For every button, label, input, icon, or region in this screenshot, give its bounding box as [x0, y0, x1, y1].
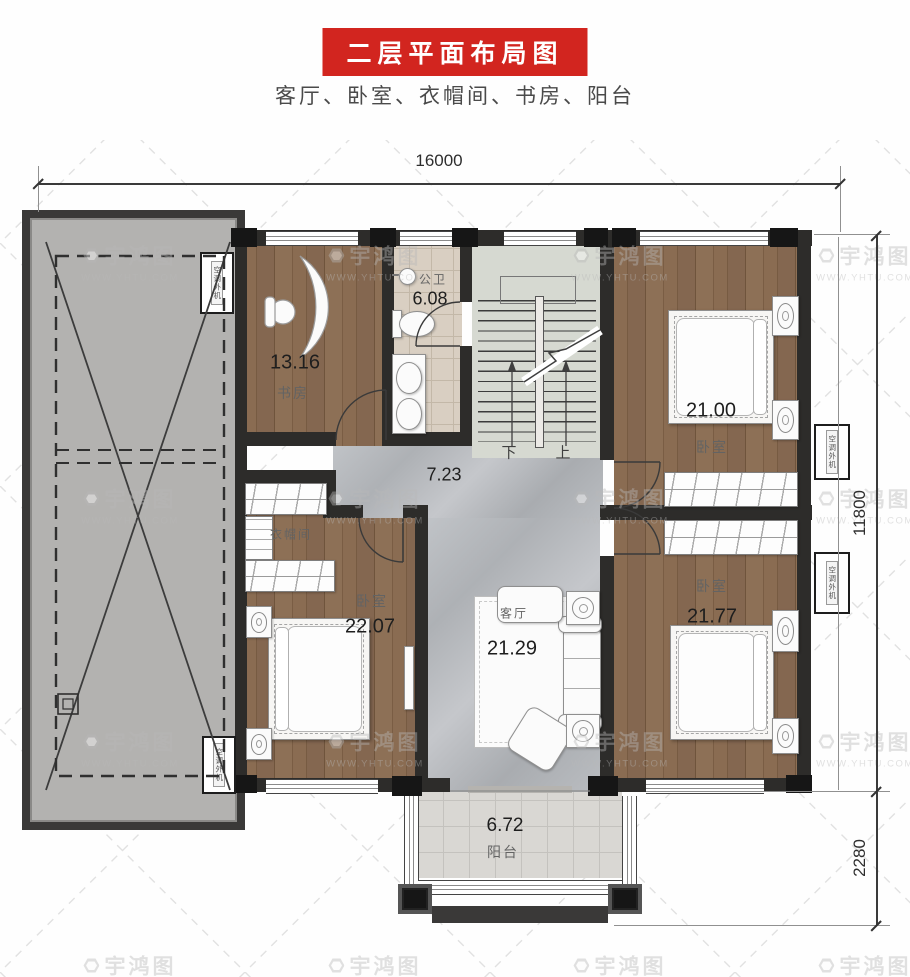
balcony-rail-left: [404, 796, 419, 888]
shower-head: [399, 268, 416, 285]
bedroom-bottom-right-area: 21.77: [687, 606, 737, 629]
eave-line-right: [838, 237, 839, 790]
cloakroom-label: 衣帽间: [270, 526, 312, 543]
window-bedroom-bottom-left: [266, 779, 378, 794]
balcony-base-band: [432, 906, 608, 923]
cloakroom-wardrobe-top: [245, 483, 327, 515]
wall-hall-bedroom-left: [336, 505, 363, 518]
study-label: 书房: [277, 383, 309, 403]
nightstand: [772, 296, 799, 336]
balcony-rail-bottom: [418, 880, 622, 895]
nightstand: [772, 610, 799, 652]
dimension-ext-right-3: [614, 925, 890, 926]
hallway-area: 7.23: [426, 465, 461, 486]
bathroom-label: 公卫: [419, 271, 447, 288]
living-room-area: 21.29: [487, 638, 537, 661]
wall-bedroom-living: [415, 505, 428, 780]
nightstand: [246, 728, 272, 760]
ac-outdoor-unit: 空调外机: [200, 252, 234, 314]
watermark: 宇鸿图WWW.YHTU.COM: [326, 951, 424, 977]
dimension-line-top: [38, 183, 840, 185]
watermark-logo-icon: [819, 249, 835, 263]
floor-plan-page: 二层平面布局图 客厅、卧室、衣帽间、书房、阳台 16000 11800 2280: [0, 0, 910, 977]
wall-bedrooms-divider: [600, 505, 812, 520]
dimension-ext-top-left: [38, 166, 39, 212]
column: [584, 228, 608, 247]
watermark-logo-icon: [574, 959, 590, 973]
watermark: 宇鸿图WWW.YHTU.COM: [571, 951, 669, 977]
bedroom-bottom-left-label: 卧室: [356, 591, 388, 611]
cloakroom-shelf: [245, 516, 273, 560]
watermark-logo-icon: [819, 735, 835, 749]
watermark-logo-icon: [84, 959, 100, 973]
column: [770, 228, 798, 247]
side-table: [566, 714, 600, 748]
toilet-bowl: [399, 311, 435, 337]
window-bathroom: [400, 231, 452, 246]
watermark: 宇鸿图WWW.YHTU.COM: [816, 727, 910, 770]
dimension-side-main: 11800: [850, 490, 870, 536]
column: [612, 228, 636, 247]
column: [452, 228, 478, 247]
bed-bottom-right: [670, 625, 774, 740]
watermark: 宇鸿图WWW.YHTU.COM: [81, 951, 179, 977]
watermark-logo-icon: [819, 492, 835, 506]
balcony-step: [468, 786, 572, 793]
stair-stringer: [535, 296, 544, 448]
living-room-label: 客厅: [500, 605, 528, 622]
wardrobe-bedroom-top-right: [664, 472, 798, 507]
wall-bath-stairs-lower: [460, 346, 472, 446]
watermark-logo-icon: [329, 959, 345, 973]
ac-outdoor-unit: 空调外机: [814, 552, 850, 614]
dimension-top-width: 16000: [415, 151, 462, 171]
balcony-corner-column-right: [608, 884, 642, 914]
dimension-ext-right-2: [646, 791, 890, 792]
bathroom-sink: [396, 362, 422, 394]
watermark: 宇鸿图WWW.YHTU.COM: [816, 951, 910, 977]
wall-hall-bedroom-right: [403, 505, 415, 518]
wall-stairs-right: [600, 240, 614, 460]
ac-outdoor-unit: 空调外机: [202, 736, 236, 794]
wall-living-bedroom-right: [600, 556, 614, 780]
study-area: 13.16: [270, 352, 320, 375]
window-bedroom-top-right: [640, 231, 768, 246]
bedroom-bottom-right-label: 卧室: [696, 576, 728, 596]
page-title: 二层平面布局图: [322, 28, 587, 76]
stair-up-label: 上: [555, 442, 570, 463]
window-study: [266, 231, 358, 246]
bedroom-top-right-area: 21.00: [686, 400, 736, 423]
balcony-area: 6.72: [487, 815, 524, 837]
cloakroom-wardrobe-bottom: [245, 560, 335, 592]
tv-console: [404, 646, 414, 710]
sofa: [563, 628, 601, 720]
page-subtitle: 客厅、卧室、衣帽间、书房、阳台: [0, 80, 910, 110]
column: [231, 228, 257, 247]
watermark: 宇鸿图WWW.YHTU.COM: [816, 241, 910, 284]
bathroom-area: 6.08: [412, 289, 447, 310]
window-stairs: [504, 231, 576, 246]
nightstand: [772, 400, 799, 440]
wall-bath-bottom: [382, 432, 472, 446]
column: [370, 228, 396, 247]
dimension-ext-top-right: [840, 166, 841, 232]
bedroom-top-right-label: 卧室: [696, 437, 728, 457]
balcony-label: 阳台: [487, 842, 519, 862]
dimension-line-right: [876, 235, 878, 926]
balcony-rail-right: [622, 796, 637, 888]
watermark-logo-icon: [819, 959, 835, 973]
bathroom-sink: [396, 398, 422, 430]
wall-bath-stairs-upper: [460, 240, 472, 302]
ac-outdoor-unit: 空调外机: [814, 424, 850, 480]
bedroom-bottom-left-area: 22.07: [345, 616, 395, 639]
balcony-corner-column-left: [398, 884, 432, 914]
study-floor: [243, 246, 388, 446]
wall-study-bottom: [243, 432, 336, 446]
nightstand: [246, 606, 272, 638]
column-balcony-left: [392, 776, 422, 796]
side-table: [566, 591, 600, 625]
column-balcony-right: [588, 776, 618, 796]
wardrobe-bedroom-bottom-right: [664, 520, 798, 555]
stair-down-label: 下: [501, 442, 516, 463]
dimension-side-balcony: 2280: [850, 839, 870, 877]
nightstand: [772, 718, 799, 754]
